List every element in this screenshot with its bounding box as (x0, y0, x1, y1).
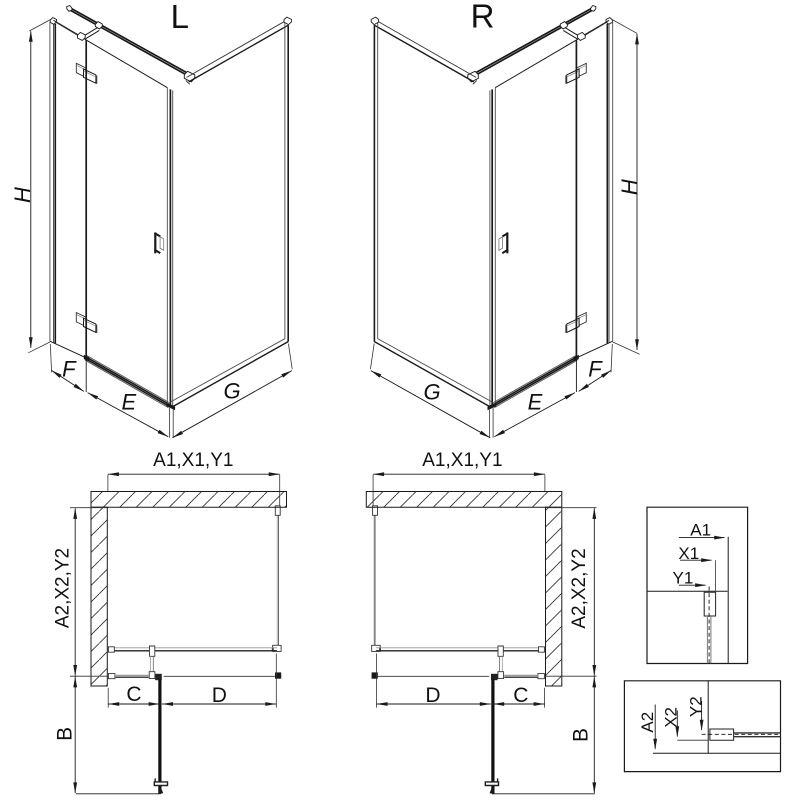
svg-text:A2: A2 (638, 712, 657, 733)
svg-text:A1: A1 (690, 521, 711, 540)
svg-text:H: H (10, 187, 35, 203)
svg-text:E: E (121, 390, 136, 415)
svg-text:D: D (425, 684, 440, 707)
svg-text:H: H (617, 179, 642, 195)
svg-text:Y2: Y2 (687, 696, 706, 717)
svg-text:D: D (212, 684, 227, 707)
svg-text:C: C (126, 683, 141, 706)
svg-text:E: E (528, 390, 543, 415)
svg-text:C: C (513, 684, 528, 707)
svg-text:G: G (423, 380, 440, 405)
svg-text:X1: X1 (678, 544, 699, 563)
svg-text:R: R (471, 0, 495, 35)
svg-text:G: G (223, 379, 240, 404)
svg-text:Y1: Y1 (673, 569, 694, 588)
svg-text:F: F (62, 357, 77, 382)
svg-text:B: B (569, 728, 592, 742)
svg-text:B: B (53, 727, 76, 741)
svg-text:L: L (171, 0, 189, 35)
svg-text:A1,X1,Y1: A1,X1,Y1 (153, 450, 233, 471)
svg-text:A1,X1,Y1: A1,X1,Y1 (422, 450, 502, 471)
svg-text:X2: X2 (662, 707, 681, 728)
svg-text:A2,X2,Y2: A2,X2,Y2 (569, 548, 590, 628)
svg-text:F: F (588, 357, 603, 382)
svg-text:A2,X2,Y2: A2,X2,Y2 (52, 548, 73, 628)
